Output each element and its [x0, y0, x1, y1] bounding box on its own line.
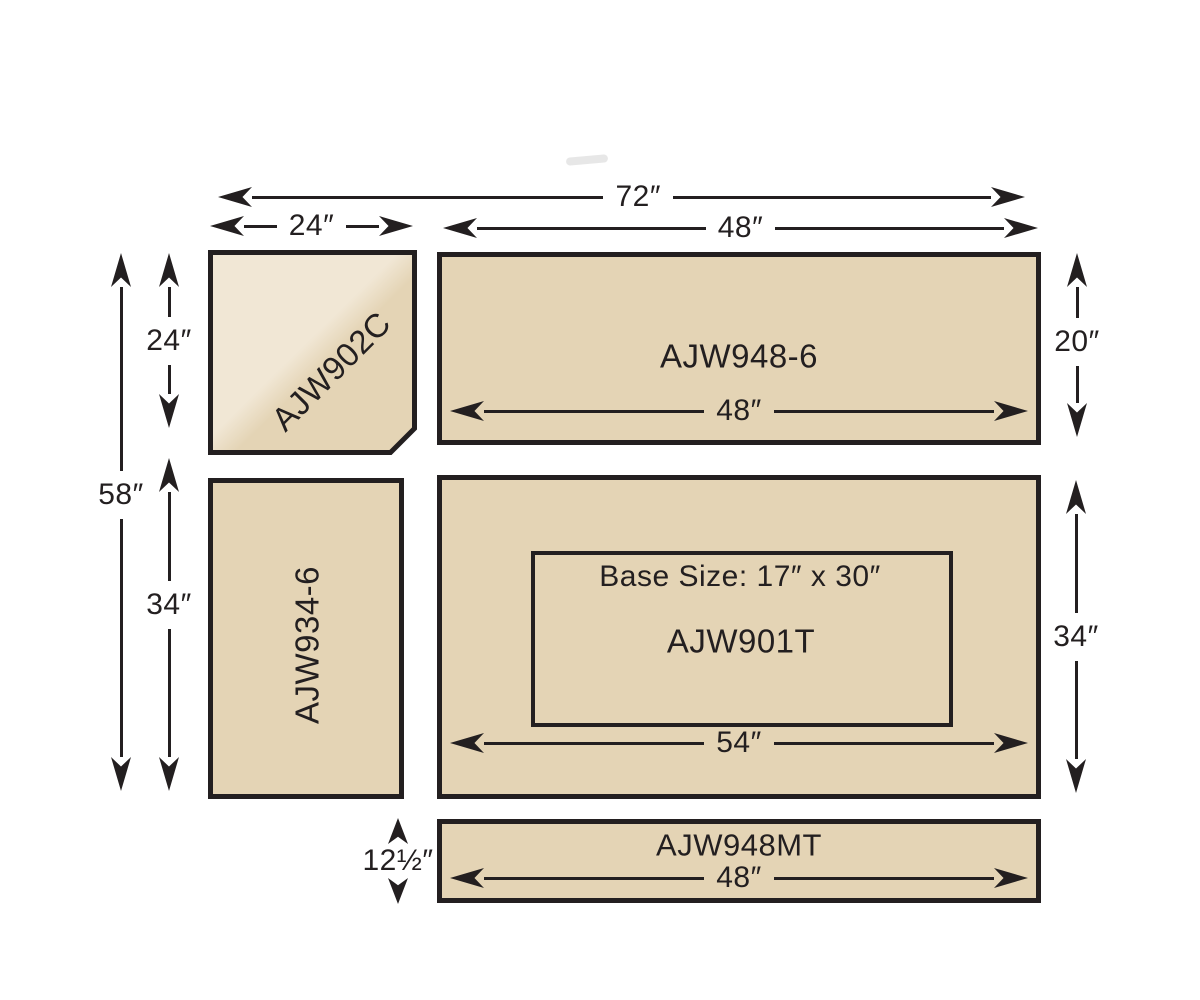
arrowhead-right-icon	[991, 187, 1025, 207]
arrowhead-right-icon	[994, 401, 1028, 421]
arrowhead-right-icon	[994, 733, 1028, 753]
arrowhead-right-icon	[1004, 218, 1038, 238]
dim-line	[252, 196, 603, 199]
dim-left-lower-height: 34″	[147, 458, 191, 791]
arrowhead-left-icon	[210, 216, 244, 236]
dim-overall-height-label: 58″	[98, 471, 144, 519]
dim-line	[774, 877, 994, 880]
arrowhead-up-icon	[159, 253, 179, 287]
dim-corner-height-label: 24″	[146, 317, 192, 365]
arrowhead-down-icon	[388, 878, 408, 904]
arrowhead-left-icon	[218, 187, 252, 207]
main-counter-model-label: AJW901T	[667, 625, 815, 658]
dim-line	[774, 742, 994, 745]
dim-top-counter-width: 48″	[450, 394, 1028, 428]
dim-line	[484, 742, 704, 745]
dim-main-counter-width-label: 54″	[704, 728, 774, 758]
arrowhead-down-icon	[1067, 403, 1087, 437]
arrowhead-up-icon	[159, 458, 179, 492]
arrowhead-down-icon	[1066, 759, 1086, 793]
dim-overall-height: 58″	[99, 253, 143, 791]
dim-line	[673, 196, 991, 199]
arrowhead-left-icon	[450, 401, 484, 421]
dim-right-width: 48″	[443, 211, 1038, 245]
dim-right-width-label: 48″	[706, 213, 776, 243]
dim-overall-width-label: 72″	[603, 182, 673, 212]
base-size-label: Base Size: 17″ x 30″	[599, 562, 880, 592]
corner-piece-shape	[208, 250, 417, 455]
dim-line	[484, 877, 704, 880]
dim-line	[1075, 661, 1078, 760]
bottom-rail-model-label: AJW948MT	[656, 830, 822, 861]
dim-main-counter-width: 54″	[450, 726, 1028, 760]
dim-line	[1075, 514, 1078, 613]
dim-corner-width: 24″	[210, 209, 413, 243]
arrowhead-down-icon	[159, 757, 179, 791]
dim-right-main-height: 34″	[1054, 480, 1098, 793]
arrowhead-up-icon	[111, 253, 131, 287]
top-counter-model-label: AJW948-6	[660, 340, 818, 373]
arrowhead-down-icon	[159, 394, 179, 428]
dim-line	[168, 287, 171, 317]
dim-top-counter-width-label: 48″	[704, 396, 774, 426]
dim-rail-width: 48″	[450, 861, 1028, 895]
dim-line	[484, 410, 704, 413]
arrowhead-left-icon	[443, 218, 477, 238]
dim-right-main-height-label: 34″	[1053, 613, 1099, 661]
dim-line	[775, 227, 1004, 230]
arrowhead-right-icon	[994, 868, 1028, 888]
dim-right-top-height: 20″	[1055, 253, 1099, 437]
arrowhead-down-icon	[111, 757, 131, 791]
dim-line	[168, 629, 171, 757]
dim-right-top-height-label: 20″	[1054, 318, 1100, 366]
dim-rail-width-label: 48″	[704, 863, 774, 893]
countertop-dimension-diagram: AJW902C AJW948-6 AJW934-6 Base Size: 17″…	[0, 0, 1200, 1000]
dim-corner-height: 24″	[147, 253, 191, 428]
left-counter-model-label: AJW934-6	[291, 566, 324, 724]
dim-line	[346, 225, 379, 228]
scan-smudge-artifact	[566, 154, 609, 166]
dim-line	[1076, 287, 1079, 318]
arrowhead-up-icon	[1066, 480, 1086, 514]
dim-line	[244, 225, 277, 228]
dim-line	[168, 365, 171, 395]
dim-rail-height-label: 12½″	[363, 844, 434, 878]
dim-left-lower-height-label: 34″	[146, 581, 192, 629]
dim-line	[120, 519, 123, 757]
dim-line	[774, 410, 994, 413]
dim-line	[120, 287, 123, 471]
dim-rail-height: 12½″	[376, 818, 420, 903]
dim-line	[477, 227, 706, 230]
arrowhead-left-icon	[450, 868, 484, 888]
arrowhead-up-icon	[388, 818, 408, 844]
dim-line	[1076, 366, 1079, 403]
arrowhead-right-icon	[379, 216, 413, 236]
arrowhead-up-icon	[1067, 253, 1087, 287]
arrowhead-left-icon	[450, 733, 484, 753]
dim-corner-width-label: 24″	[277, 211, 347, 241]
dim-line	[168, 492, 171, 581]
